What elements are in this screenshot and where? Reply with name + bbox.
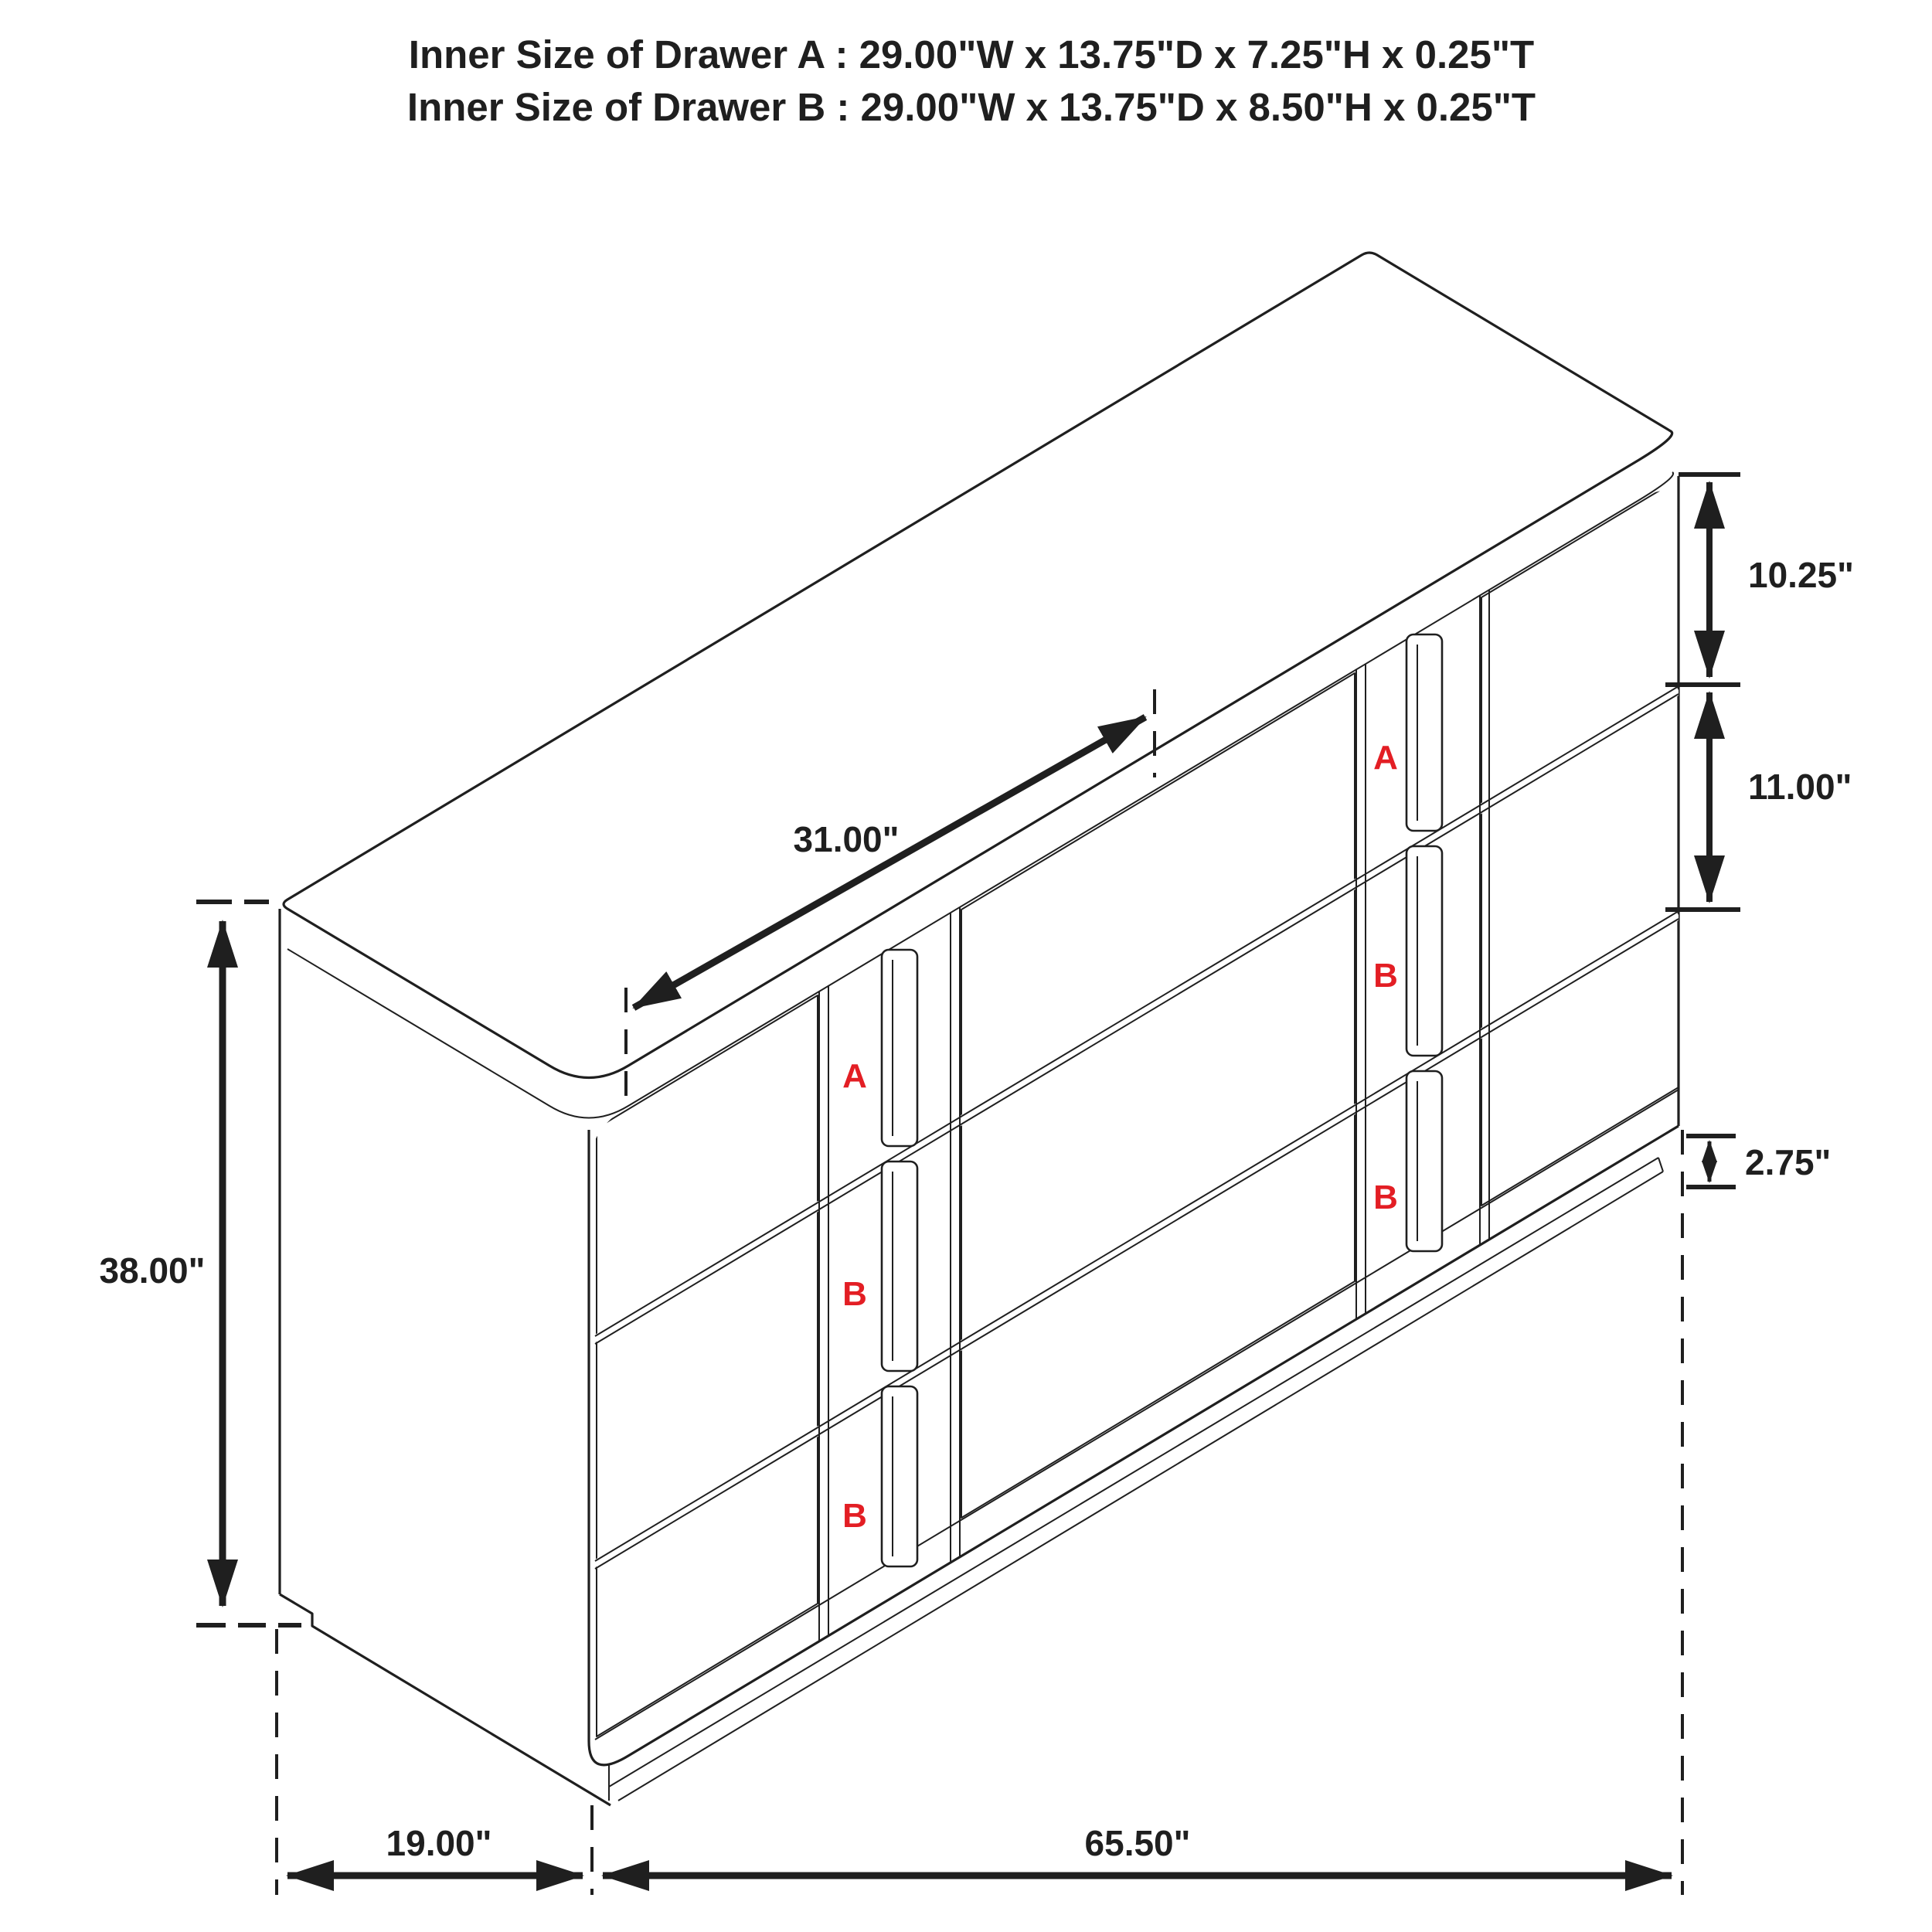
dimension-label-top-drawer: 10.25"	[1748, 555, 1854, 595]
dimension-overall-height: 38.00"	[100, 902, 301, 1625]
fluted-drawer-front-right	[1481, 479, 1679, 1206]
drawer-label-left-b1: B	[842, 1275, 867, 1313]
drawer-label-left-a: A	[842, 1057, 867, 1095]
dimension-label-base: 2.75"	[1745, 1142, 1831, 1182]
drawer-handle-left	[882, 950, 917, 1566]
dimension-lower-drawer: 11.00"	[1665, 692, 1852, 910]
base-top-edge	[609, 1158, 1658, 1787]
dresser-dimension-diagram: Inner Size of Drawer A : 29.00"W x 13.75…	[0, 0, 1932, 1932]
cabinet-drawing	[280, 253, 1679, 1805]
dimension-bottom-row: 19.00" 65.50"	[277, 1130, 1682, 1895]
front-face-bottom-edge	[589, 1126, 1679, 1765]
base-right-end	[1658, 1158, 1663, 1172]
dimension-label-overall-width: 65.50"	[1085, 1823, 1191, 1863]
bottom-rail-line	[595, 1090, 1679, 1740]
dimension-base-height: 2.75"	[1686, 1136, 1831, 1187]
dimension-label-lower-drawer: 11.00"	[1748, 767, 1852, 807]
title-line-1: Inner Size of Drawer A : 29.00"W x 13.75…	[409, 32, 1534, 77]
drawer-label-right-b2: B	[1373, 1179, 1398, 1216]
drawer-label-left-b2: B	[842, 1497, 867, 1535]
drawer-handle-right	[1406, 634, 1442, 1251]
side-panel-bottom-edge	[280, 1594, 611, 1805]
dimension-label-center-section: 31.00"	[794, 819, 900, 859]
base-bottom-edge	[618, 1172, 1663, 1801]
furniture-dimension-diagram-page: Inner Size of Drawer A : 29.00"W x 13.75…	[0, 0, 1932, 1932]
drawer-label-right-a: A	[1373, 739, 1398, 777]
dimension-label-overall-depth: 19.00"	[386, 1823, 492, 1863]
cabinet-top-face	[284, 253, 1672, 1078]
dimension-label-overall-height: 38.00"	[100, 1250, 206, 1291]
drawer-label-right-b1: B	[1373, 957, 1398, 995]
title-line-2: Inner Size of Drawer B : 29.00"W x 13.75…	[407, 85, 1536, 129]
dimension-top-drawer: 10.25"	[1665, 474, 1854, 685]
diagram-title: Inner Size of Drawer A : 29.00"W x 13.75…	[407, 32, 1536, 129]
